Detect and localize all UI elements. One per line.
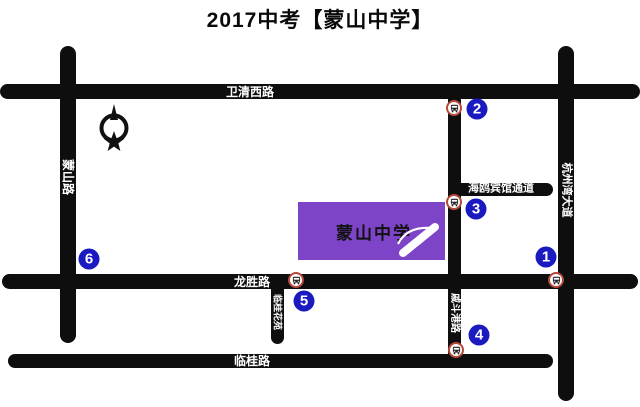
compass-north-icon: N (93, 104, 135, 154)
bus-glyph (452, 346, 461, 355)
road-longsheng (2, 274, 638, 289)
road-label-haiou-passage: 海鸥宾馆通道 (468, 184, 534, 195)
school-building-mengshan: 蒙山中学 (298, 202, 445, 260)
road-lingui (8, 354, 553, 368)
bus-glyph (450, 198, 459, 207)
marker-4: 4 (469, 325, 490, 346)
road-label-mengshan: 蒙山路 (62, 159, 74, 195)
road-label-longsheng: 龙胜路 (234, 276, 270, 288)
bus-stop-icon-1 (548, 272, 564, 288)
road-label-qidougang: 戚斗港路 (449, 293, 459, 333)
bus-glyph (552, 276, 561, 285)
marker-6: 6 (79, 249, 100, 270)
road-weiqing-west (0, 84, 640, 99)
school-gate-icon (391, 217, 443, 259)
bus-stop-icon-2 (446, 100, 462, 116)
bus-stop-icon-4 (448, 342, 464, 358)
road-hangzhouwan-avenue (558, 46, 574, 401)
road-label-linguihuayuan: 临桂花苑 (273, 294, 282, 330)
bus-glyph (450, 104, 459, 113)
road-label-weiqing: 卫清西路 (226, 86, 274, 98)
road-label-hangzhouwan: 杭州湾大道 (561, 163, 572, 218)
marker-1: 1 (536, 247, 557, 268)
page-title: 2017中考【蒙山中学】 (0, 4, 640, 34)
marker-3: 3 (466, 199, 487, 220)
map-canvas: 2017中考【蒙山中学】 卫清西路 龙胜路 临桂路 海鸥宾馆通道 蒙山路 杭州湾… (0, 0, 640, 407)
bus-stop-icon-3 (446, 194, 462, 210)
marker-5: 5 (294, 291, 315, 312)
bus-glyph (292, 276, 301, 285)
road-label-lingui: 临桂路 (234, 355, 270, 367)
bus-stop-icon-5 (288, 272, 304, 288)
marker-2: 2 (467, 99, 488, 120)
svg-text:N: N (111, 126, 116, 133)
